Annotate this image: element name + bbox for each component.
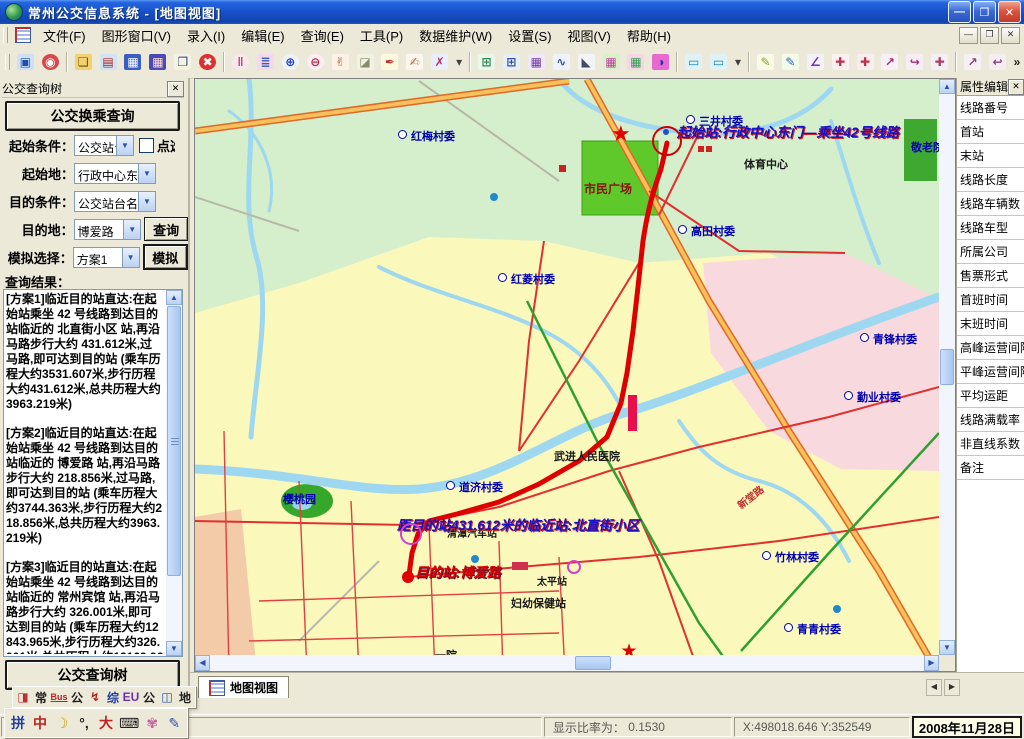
save-icon: ▦ — [124, 54, 141, 70]
map-label: 勤业村委 — [857, 389, 901, 405]
scroll-up-icon[interactable]: ▲ — [166, 290, 182, 305]
restore-button[interactable]: ❐ — [973, 1, 996, 23]
dest-place-label: 目的地： — [0, 220, 74, 239]
attribute-panel-title: 属性编辑 — [960, 78, 1008, 95]
result-plan-paragraph: [方案2]临近目的站直达:在起始站乘坐 42 号线路到达目的站临近的 博爱路 站… — [6, 426, 164, 546]
map-labels-layer: 三井村委红梅村委市民广场体育中心敬老院高田村委红菱村委青锋村委勤业村委武进人民医… — [195, 79, 939, 655]
stats-table-icon[interactable]: ▦ — [524, 49, 549, 75]
map-canvas[interactable]: 三井村委红梅村委市民广场体育中心敬老院高田村委红菱村委青锋村委勤业村委武进人民医… — [195, 79, 939, 655]
pause-refresh-icon: ‖ — [232, 54, 249, 70]
menu-item-7[interactable]: 数据维护(W) — [411, 24, 500, 47]
menu-grip — [3, 27, 8, 43]
snap-prev-icon[interactable]: ↩ — [985, 49, 1010, 75]
simulate-select-label: 模拟选择： — [0, 248, 73, 267]
attribute-row[interactable]: 备注 — [957, 456, 1024, 480]
toolbar-grip — [5, 54, 10, 70]
poi-marker — [860, 333, 869, 342]
map-label: 道济村委 — [459, 479, 503, 495]
result-plan-paragraph: [方案3]临近目的站直达:在起始站乘坐 42 号线路到达目的站临近的 常州宾馆 … — [6, 560, 164, 654]
chevron-down-icon[interactable]: ▼ — [138, 164, 155, 183]
coordinates-segment: X:498018.646 Y:352549 — [734, 717, 910, 737]
map-label: 红梅村委 — [411, 128, 455, 144]
add-vertex-icon: ✚ — [832, 54, 849, 70]
layer-gong-button[interactable]: 公 — [68, 688, 86, 706]
title-bar: 常州公交信息系统 - [地图视图] — ❐ ✕ — [0, 0, 1024, 24]
identify-icon: ✒ — [381, 54, 398, 70]
eraser-icon[interactable]: ◪ — [353, 49, 378, 75]
layer-source-icon[interactable]: ◨ — [14, 688, 32, 706]
layer-mini-toolbar: ◨常Bus公↯综EU公◫地 — [12, 686, 196, 708]
point-select-checkbox[interactable] — [139, 138, 154, 153]
result-plan-paragraph: [方案1]临近目的站直达:在起始站乘坐 42 号线路到达目的站临近的 北直街小区… — [6, 292, 164, 412]
grid-view-icon: ⊞ — [503, 54, 520, 70]
zoom-in-icon: ⊕ — [282, 54, 299, 70]
ime-dict-icon[interactable]: 大 — [96, 713, 116, 733]
attribute-row[interactable]: 非直线系数 — [957, 432, 1024, 456]
measure-dropdown-arrow[interactable]: ▾ — [731, 49, 745, 75]
dest-condition-label: 目的条件： — [0, 192, 74, 211]
display-ratio-segment: 显示比率为： 0.1530 — [544, 717, 732, 737]
attribute-row[interactable]: 线路车辆数 — [957, 192, 1024, 216]
scroll-down-icon[interactable]: ▼ — [939, 640, 955, 655]
snap-next-icon: ↗ — [964, 54, 981, 70]
zoom-out-icon[interactable]: ⊖ — [303, 49, 328, 75]
map-label: 樱桃园 — [283, 491, 316, 507]
eraser-icon: ◪ — [357, 54, 374, 70]
thematic-map-icon[interactable]: ▦ — [599, 49, 624, 75]
scrollbar-thumb[interactable] — [167, 306, 181, 576]
map-label: 市民广场 — [584, 180, 632, 197]
tab-map-view[interactable]: 地图视图 — [198, 676, 289, 698]
map-label: 新堂路 — [734, 481, 767, 511]
toolbar-separator — [66, 52, 68, 72]
attribute-row[interactable]: 末班时间 — [957, 312, 1024, 336]
poi-marker — [844, 391, 853, 400]
chevron-down-icon[interactable]: ▼ — [123, 220, 140, 239]
map-window-icon: ▣ — [17, 54, 34, 70]
menu-item-8[interactable]: 设置(S) — [500, 24, 559, 47]
layer-color-button[interactable]: ↯ — [86, 688, 104, 706]
scroll-up-icon[interactable]: ▲ — [939, 79, 955, 94]
view-tab-bar: 地图视图 ◀ ▶ — [190, 672, 1024, 715]
mdi-child-icon[interactable] — [15, 27, 31, 43]
dest-place-select[interactable]: 博爱路 ▼ — [74, 219, 142, 240]
toolbar-separator — [676, 52, 678, 72]
select-hand-icon[interactable]: ✍ — [402, 49, 427, 75]
save-all-icon: ▦ — [149, 54, 166, 70]
map-view-tab-icon — [209, 680, 225, 696]
close-doc-icon: ✖ — [199, 54, 216, 70]
close-doc-icon[interactable]: ✖ — [195, 49, 220, 75]
toolbar-separator — [469, 52, 471, 72]
close-button[interactable]: ✕ — [998, 1, 1021, 23]
poi-marker — [398, 130, 407, 139]
start-condition-select[interactable]: 公交站台名 ▼ — [74, 135, 134, 156]
transfer-query-button[interactable]: 公交换乘查询 — [5, 101, 180, 131]
add-vertex-icon[interactable]: ✚ — [828, 49, 853, 75]
ime-lang-toggle[interactable]: 中 — [30, 713, 50, 733]
map-vertical-scrollbar[interactable]: ▲ ▼ — [939, 79, 955, 655]
circle-marker — [400, 523, 422, 545]
rotate-feature-icon: ↪ — [906, 54, 923, 70]
simulate-button[interactable]: 模拟 — [143, 244, 188, 270]
mdi-minimize-button[interactable]: — — [959, 27, 978, 44]
toolbar-overflow-chevron: » — [1011, 54, 1023, 70]
zoom-dropdown-arrow[interactable]: ▾ — [452, 49, 466, 75]
mdi-restore-button[interactable]: ❐ — [980, 27, 999, 44]
delete-vertex-icon[interactable]: ✚ — [853, 49, 878, 75]
poi-marker — [678, 225, 687, 234]
map-label: 距目的站431.612米的临近站:北直街小区 — [397, 514, 639, 534]
chart-icon: ∿ — [553, 54, 570, 70]
layer-screen-button[interactable]: ◫ — [158, 688, 176, 706]
new-window-icon: ❐ — [174, 54, 191, 70]
ime-punct-toggle[interactable]: °, — [74, 713, 94, 733]
tab-scroll-right-icon[interactable]: ▶ — [944, 679, 960, 696]
scroll-right-icon[interactable]: ▶ — [924, 655, 939, 671]
circle-marker — [567, 560, 581, 574]
layer-zong-button[interactable]: 综 — [104, 688, 122, 706]
scrollbar-thumb[interactable] — [575, 656, 611, 670]
map-label: 青青村委 — [797, 621, 841, 637]
menu-item-3[interactable]: 录入(I) — [179, 24, 233, 47]
open-folder-icon[interactable]: ❏ — [71, 49, 96, 75]
menu-item-5[interactable]: 查询(E) — [293, 24, 352, 47]
new-window-icon[interactable]: ❐ — [170, 49, 195, 75]
start-place-select[interactable]: 行政中心东门 ▼ — [74, 163, 156, 184]
mdi-close-button[interactable]: ✕ — [1001, 27, 1020, 44]
split-feature-icon[interactable]: ✚ — [927, 49, 952, 75]
zoom-in-icon[interactable]: ⊕ — [278, 49, 303, 75]
chevron-down-icon[interactable]: ▼ — [122, 248, 139, 267]
map-label: 起始站:行政中心东门—乘坐42号线路 — [677, 121, 899, 141]
poi-marker — [784, 623, 793, 632]
point-select-label: 点选 — [157, 136, 175, 155]
chevron-down-icon[interactable]: ▼ — [138, 192, 155, 211]
measure-dropdown-arrow: ▾ — [732, 54, 744, 70]
grid-edit-icon[interactable]: ⊞ — [474, 49, 499, 75]
edit-data-icon: ▤ — [100, 54, 117, 70]
dot-marker — [490, 193, 498, 201]
map-view: 三井村委红梅村委市民广场体育中心敬老院高田村委红菱村委青锋村委勤业村委武进人民医… — [194, 78, 956, 672]
scrollbar-thumb[interactable] — [940, 349, 954, 385]
scroll-left-icon[interactable]: ◀ — [195, 655, 210, 671]
layer-eu-button[interactable]: EU — [122, 688, 140, 706]
attribute-row[interactable]: 线路长度 — [957, 168, 1024, 192]
start-place-label: 起始地： — [0, 164, 74, 183]
ime-tools-icon[interactable]: ✾ — [142, 713, 162, 733]
identify-icon[interactable]: ✒ — [377, 49, 402, 75]
attribute-row[interactable]: 平峰运营间隔 — [957, 360, 1024, 384]
dot-marker — [833, 605, 841, 613]
rect-marker — [559, 165, 566, 172]
attribute-row[interactable]: 线路满载率 — [957, 408, 1024, 432]
select-hand-icon: ✍ — [406, 54, 423, 70]
save-all-icon[interactable]: ▦ — [145, 49, 170, 75]
measure-length-icon[interactable]: ▭ — [681, 49, 706, 75]
poi-marker — [446, 481, 455, 490]
ime-width-toggle[interactable]: ☽ — [52, 713, 72, 733]
map-label: 太平站 — [537, 573, 567, 588]
start-condition-label: 起始条件： — [0, 136, 74, 155]
pause-refresh-icon[interactable]: ‖ — [228, 49, 253, 75]
panel-title: 公交查询树 — [2, 80, 62, 97]
zoom-out-icon: ⊖ — [307, 54, 324, 70]
layer-di-button[interactable]: 地 — [176, 688, 194, 706]
app-icon — [5, 3, 23, 21]
date-display: 2008年11月28日 — [912, 716, 1022, 738]
attribute-row[interactable]: 线路车型 — [957, 216, 1024, 240]
attribute-row[interactable]: 售票形式 — [957, 264, 1024, 288]
rect-marker — [698, 146, 704, 152]
rotate-feature-icon[interactable]: ↪ — [902, 49, 927, 75]
attribute-row[interactable]: 所属公司 — [957, 240, 1024, 264]
zoom-dropdown-arrow: ▾ — [453, 54, 465, 70]
snap-next-icon[interactable]: ↗ — [960, 49, 985, 75]
attribute-row[interactable]: 首站 — [957, 120, 1024, 144]
poi-marker — [498, 273, 507, 282]
ime-language-bar: 拼中☽°,大⌨✾✎ — [4, 708, 188, 738]
map-label: 高田村委 — [691, 223, 735, 239]
toolbar-separator — [955, 52, 957, 72]
move-vertex-icon: ↗ — [881, 54, 898, 70]
attribute-row[interactable]: 线路番号 — [957, 96, 1024, 120]
pan-hand-icon[interactable]: ✌ — [328, 49, 353, 75]
map-label: 体育中心 — [744, 156, 788, 172]
bus-query-panel: 公交查询树 ✕ 公交换乘查询 起始条件： 公交站台名 ▼ 点选 起始地： 行政中… — [0, 78, 190, 686]
attribute-row[interactable]: 末站 — [957, 144, 1024, 168]
attribute-row[interactable]: 首班时间 — [957, 288, 1024, 312]
save-icon[interactable]: ▦ — [121, 49, 146, 75]
display-ratio-value: 0.1530 — [628, 720, 665, 734]
query-results-box[interactable]: [方案1]临近目的站直达:在起始站乘坐 42 号线路到达目的站临近的 北直街小区… — [3, 289, 183, 657]
clear-selection-icon: ✗ — [431, 54, 448, 70]
dest-condition-select[interactable]: 公交站台名 ▼ — [74, 191, 156, 212]
map-window-icon[interactable]: ▣ — [13, 49, 38, 75]
ime-notes-icon[interactable]: ✎ — [164, 713, 184, 733]
menu-item-1[interactable]: 文件(F) — [35, 24, 94, 47]
menu-item-4[interactable]: 编辑(E) — [233, 24, 292, 47]
scroll-down-icon[interactable]: ▼ — [166, 641, 182, 656]
slope-ruler-icon[interactable]: ◣ — [574, 49, 599, 75]
record-view-icon: ◉ — [42, 54, 59, 70]
clear-selection-icon[interactable]: ✗ — [427, 49, 452, 75]
split-feature-icon: ✚ — [931, 54, 948, 70]
map-horizontal-scrollbar[interactable]: ◀ ▶ — [195, 655, 939, 671]
measure-length-icon: ▭ — [685, 54, 702, 70]
simulate-plan-select[interactable]: 方案1 ▼ — [73, 247, 140, 268]
rect-marker — [628, 395, 637, 431]
menu-item-2[interactable]: 图形窗口(V) — [94, 24, 179, 47]
ime-softkeyboard-icon[interactable]: ⌨ — [118, 713, 140, 733]
measure-area-icon: ▭ — [710, 54, 727, 70]
dot-marker — [663, 129, 669, 135]
attribute-row[interactable]: 高峰运营间隔 — [957, 336, 1024, 360]
star-marker: ★ — [621, 642, 638, 656]
menu-item-6[interactable]: 工具(P) — [352, 24, 411, 47]
rect-marker — [512, 562, 528, 570]
map-label: 青锋村委 — [873, 331, 917, 347]
pan-hand-icon: ✌ — [332, 54, 349, 70]
menu-item-10[interactable]: 帮助(H) — [619, 24, 679, 47]
thematic-map-icon: ▦ — [603, 54, 620, 70]
thematic-map2-icon: ▦ — [627, 54, 644, 70]
dot-marker — [402, 571, 414, 583]
layer-gong2-button[interactable]: 公 — [140, 688, 158, 706]
draw-pencil-icon: ✎ — [757, 54, 774, 70]
menu-item-9[interactable]: 视图(V) — [560, 24, 619, 47]
stats-table-icon: ▦ — [528, 54, 545, 70]
grid-edit-icon: ⊞ — [478, 54, 495, 70]
delete-vertex-icon: ✚ — [857, 54, 874, 70]
record-view-icon[interactable]: ◉ — [38, 49, 63, 75]
map-label: 妇幼保健站 — [511, 595, 566, 611]
thematic-map2-icon[interactable]: ▦ — [623, 49, 648, 75]
menu-bar: 文件(F)图形窗口(V)录入(I)编辑(E)查询(E)工具(P)数据维护(W)设… — [0, 24, 1024, 46]
query-results-text: [方案1]临近目的站直达:在起始站乘坐 42 号线路到达目的站临近的 北直街小区… — [6, 292, 164, 654]
attribute-edit-panel: 属性编辑 ✕ 线路番号首站末站线路长度线路车辆数线路车型所属公司售票形式首班时间… — [956, 78, 1024, 672]
chevron-down-icon[interactable]: ▼ — [116, 136, 133, 155]
star-marker: ★ — [611, 123, 631, 145]
map-label: 目的站:博爱路 — [415, 561, 501, 581]
panel-close-icon[interactable]: ✕ — [167, 81, 184, 97]
map-label: 竹林村委 — [775, 549, 819, 565]
layers-icon[interactable]: ≣ — [253, 49, 278, 75]
scrollbar-corner — [939, 655, 955, 671]
ime-brand-icon[interactable]: 拼 — [8, 713, 28, 733]
layer-chang-button[interactable]: 常 — [32, 688, 50, 706]
dot-marker — [471, 555, 479, 563]
minimize-button[interactable]: — — [948, 1, 971, 23]
move-vertex-icon[interactable]: ↗ — [877, 49, 902, 75]
snap-prev-icon: ↩ — [989, 54, 1006, 70]
toolbar-separator — [223, 52, 225, 72]
draw-polyline-icon: ✎ — [782, 54, 799, 70]
attribute-row[interactable]: 平均运距 — [957, 384, 1024, 408]
draw-pencil-icon[interactable]: ✎ — [753, 49, 778, 75]
open-folder-icon: ❏ — [75, 54, 92, 70]
map-label: 武进人民医院 — [554, 448, 620, 464]
edit-data-icon[interactable]: ▤ — [96, 49, 121, 75]
map-label: 一院 — [435, 647, 457, 655]
edit-vertex-icon[interactable]: ∠ — [803, 49, 828, 75]
thematic-map3-icon: ◑ — [652, 54, 669, 70]
thematic-map3-icon[interactable]: ◑ — [648, 49, 673, 75]
main-toolbar: ▣◉❏▤▦▦❐✖‖≣⊕⊖✌◪✒✍✗▾⊞⊞▦∿◣▦▦◑▭▭▾✎✎∠✚✚↗↪✚↗↩» — [0, 46, 1024, 79]
edit-vertex-icon: ∠ — [807, 54, 824, 70]
results-scrollbar[interactable]: ▲ ▼ — [166, 290, 182, 656]
query-button[interactable]: 查询 — [144, 217, 188, 241]
map-label: 红菱村委 — [511, 271, 555, 287]
toolbar-overflow-chevron[interactable]: » — [1010, 49, 1024, 75]
map-label: 敬老院 — [911, 139, 939, 155]
panel-close-icon[interactable]: ✕ — [1008, 79, 1024, 95]
toolbar-separator — [748, 52, 750, 72]
chart-icon[interactable]: ∿ — [549, 49, 574, 75]
layers-icon: ≣ — [257, 54, 274, 70]
layer-bus-button[interactable]: Bus — [50, 688, 68, 706]
draw-polyline-icon[interactable]: ✎ — [778, 49, 803, 75]
window-title: 常州公交信息系统 - [地图视图] — [28, 3, 948, 22]
rect-marker — [706, 146, 712, 152]
slope-ruler-icon: ◣ — [578, 54, 595, 70]
tab-scroll-left-icon[interactable]: ◀ — [926, 679, 942, 696]
measure-area-icon[interactable]: ▭ — [706, 49, 731, 75]
poi-marker — [762, 551, 771, 560]
grid-view-icon[interactable]: ⊞ — [499, 49, 524, 75]
